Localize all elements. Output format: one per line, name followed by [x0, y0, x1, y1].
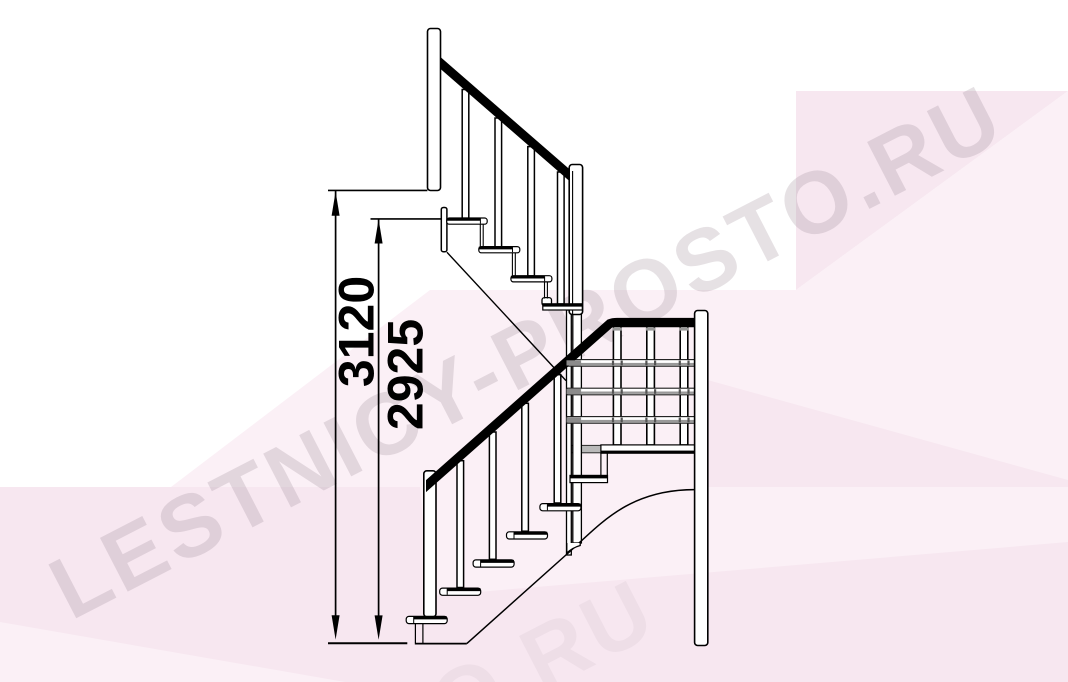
- svg-text:3120: 3120: [329, 276, 385, 387]
- svg-text:2925: 2925: [378, 319, 434, 430]
